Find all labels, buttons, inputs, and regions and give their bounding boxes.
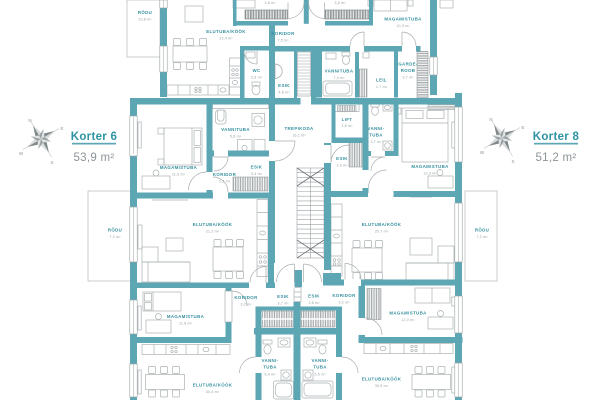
svg-text:ELUTUBA/KÖÖK: ELUTUBA/KÖÖK xyxy=(193,222,233,227)
svg-text:10,8 m²: 10,8 m² xyxy=(138,18,152,22)
svg-text:MAGAMISTUBA: MAGAMISTUBA xyxy=(411,164,449,169)
svg-text:3,2 m²: 3,2 m² xyxy=(240,303,252,307)
svg-text:MAGAMISTUBA: MAGAMISTUBA xyxy=(167,314,205,319)
svg-text:2,2 m²: 2,2 m² xyxy=(219,180,231,184)
svg-text:1,7 m²: 1,7 m² xyxy=(376,85,388,89)
svg-text:3,2 m²: 3,2 m² xyxy=(338,301,350,305)
svg-text:VANNITUBA: VANNITUBA xyxy=(221,127,250,132)
svg-text:ESIK: ESIK xyxy=(277,294,289,299)
svg-text:LIFT: LIFT xyxy=(342,117,353,122)
svg-text:5,4 m²: 5,4 m² xyxy=(264,373,276,377)
svg-text:LEIL: LEIL xyxy=(376,78,387,83)
svg-text:5,6 m²: 5,6 m² xyxy=(230,135,242,139)
svg-text:7,2 m²: 7,2 m² xyxy=(476,235,488,239)
svg-text:KORIDOR: KORIDOR xyxy=(271,31,295,36)
svg-text:11,8 m²: 11,8 m² xyxy=(179,322,193,326)
svg-text:23,4 m²: 23,4 m² xyxy=(219,37,233,41)
svg-text:7,5 m²: 7,5 m² xyxy=(277,39,289,43)
svg-text:7,2 m²: 7,2 m² xyxy=(109,235,121,239)
svg-text:21,2 m²: 21,2 m² xyxy=(206,230,220,234)
svg-text:3,8 m²: 3,8 m² xyxy=(334,1,346,5)
svg-text:10,3 m²: 10,3 m² xyxy=(396,24,410,28)
svg-text:30,5 m²: 30,5 m² xyxy=(375,384,389,388)
svg-text:KORIDOR: KORIDOR xyxy=(332,293,356,298)
svg-text:13,3 m²: 13,3 m² xyxy=(423,172,437,176)
svg-text:GARDE-: GARDE- xyxy=(398,62,418,67)
svg-text:ESIK: ESIK xyxy=(308,294,320,299)
svg-text:TUBA: TUBA xyxy=(263,365,277,370)
svg-text:Korter 6: Korter 6 xyxy=(71,131,118,143)
svg-text:ESIK: ESIK xyxy=(278,83,290,88)
svg-text:MAGAMISTUBA: MAGAMISTUBA xyxy=(160,165,198,170)
svg-text:51,2 m²: 51,2 m² xyxy=(535,152,576,164)
svg-text:3,3 m²: 3,3 m² xyxy=(251,172,263,176)
svg-text:N: N xyxy=(28,118,31,123)
svg-text:ELUTUBA/KÖÖK: ELUTUBA/KÖÖK xyxy=(362,222,402,227)
svg-text:KORIDOR: KORIDOR xyxy=(213,172,237,177)
svg-text:53,9 m²: 53,9 m² xyxy=(73,152,114,164)
svg-text:3,7 m²: 3,7 m² xyxy=(277,302,289,306)
svg-text:S: S xyxy=(511,159,514,164)
svg-text:E: E xyxy=(521,125,524,130)
svg-text:4,8 m²: 4,8 m² xyxy=(278,91,290,95)
svg-text:MAGAMISTUBA: MAGAMISTUBA xyxy=(384,17,422,22)
svg-text:5,5 m²: 5,5 m² xyxy=(314,373,326,377)
svg-text:30,4 m²: 30,4 m² xyxy=(206,390,220,394)
svg-text:16,1 m²: 16,1 m² xyxy=(292,134,306,138)
svg-text:Korter 8: Korter 8 xyxy=(533,131,580,143)
svg-text:N: N xyxy=(489,117,492,122)
svg-text:RÕDU: RÕDU xyxy=(108,228,122,233)
svg-text:S: S xyxy=(50,160,53,165)
svg-text:2,6 m²: 2,6 m² xyxy=(341,124,353,128)
svg-text:ROOB: ROOB xyxy=(401,68,416,73)
svg-text:RÕDU: RÕDU xyxy=(475,228,489,233)
svg-text:TUBA: TUBA xyxy=(369,133,383,138)
svg-text:VANNI-: VANNI- xyxy=(368,126,385,131)
svg-text:3,7 m²: 3,7 m² xyxy=(402,76,414,80)
svg-text:VANNI-: VANNI- xyxy=(262,358,279,363)
svg-text:12,0 m²: 12,0 m² xyxy=(401,318,415,322)
svg-text:ELUTUBA/KÖÖK: ELUTUBA/KÖÖK xyxy=(206,29,246,34)
svg-text:TREPIKODA: TREPIKODA xyxy=(284,126,313,131)
svg-text:2,6 m²: 2,6 m² xyxy=(251,76,263,80)
svg-text:VANNI-: VANNI- xyxy=(312,358,329,363)
svg-text:7,4 m²: 7,4 m² xyxy=(333,76,345,80)
svg-text:MAGAMISTUBA: MAGAMISTUBA xyxy=(389,311,427,316)
svg-text:ESIK: ESIK xyxy=(336,156,348,161)
svg-text:ELUTUBA/KÖÖK: ELUTUBA/KÖÖK xyxy=(362,377,402,382)
svg-text:3,7 m²: 3,7 m² xyxy=(370,140,382,144)
svg-text:20,7 m²: 20,7 m² xyxy=(375,230,389,234)
svg-text:RÕDU: RÕDU xyxy=(138,10,152,15)
svg-text:TUBA: TUBA xyxy=(313,365,327,370)
svg-text:ESIK: ESIK xyxy=(251,165,263,170)
svg-text:E: E xyxy=(60,126,63,131)
svg-text:KORIDOR: KORIDOR xyxy=(234,295,258,300)
svg-text:ELUTUBA/KÖÖK: ELUTUBA/KÖÖK xyxy=(193,383,233,388)
svg-text:WC: WC xyxy=(252,68,260,73)
svg-text:2,9 m²: 2,9 m² xyxy=(336,164,348,168)
svg-text:11,6 m²: 11,6 m² xyxy=(172,173,186,177)
svg-text:VANNITUBA: VANNITUBA xyxy=(325,69,354,74)
svg-text:3,8 m²: 3,8 m² xyxy=(264,1,276,5)
svg-text:3,8 m²: 3,8 m² xyxy=(308,301,320,305)
